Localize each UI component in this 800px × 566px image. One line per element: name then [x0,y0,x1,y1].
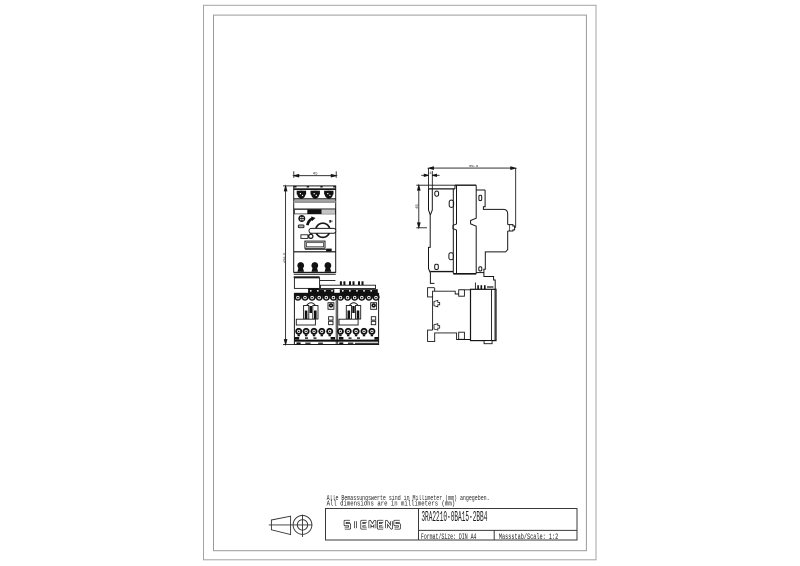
svg-text:3RA2210-0BA15-2BB4: 3RA2210-0BA15-2BB4 [421,510,487,526]
svg-text:143.5: 143.5 [283,253,287,263]
svg-text:All dimensions are in millimet: All dimensions are in millimeters (mm) [327,501,456,509]
svg-text:45: 45 [313,173,318,177]
svg-text:Massstab/Scale: 1:2: Massstab/Scale: 1:2 [499,532,558,542]
svg-text:Format/Size: DIN A4: Format/Size: DIN A4 [421,532,477,542]
svg-text:96.5: 96.5 [469,165,478,169]
svg-text:45: 45 [416,204,420,209]
